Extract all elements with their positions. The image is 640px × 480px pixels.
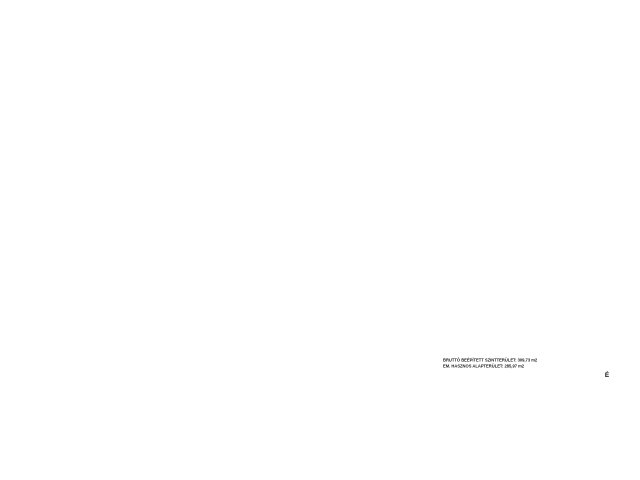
area-summary-line1: BRUTTÓ BEÉPÍTETT SZINTTERÜLET: 309,73 m2 — [443, 358, 538, 363]
area-summary-line2: EM. HASZNOS ALAPTERÜLET: 285,97 m2 — [443, 364, 525, 369]
floorplan-canvas: BRUTTÓ BEÉPÍTETT SZINTTERÜLET: 309,73 m2… — [0, 0, 640, 480]
floorplan-sheet: BRUTTÓ BEÉPÍTETT SZINTTERÜLET: 309,73 m2… — [0, 0, 640, 480]
north-label: É — [605, 370, 610, 379]
